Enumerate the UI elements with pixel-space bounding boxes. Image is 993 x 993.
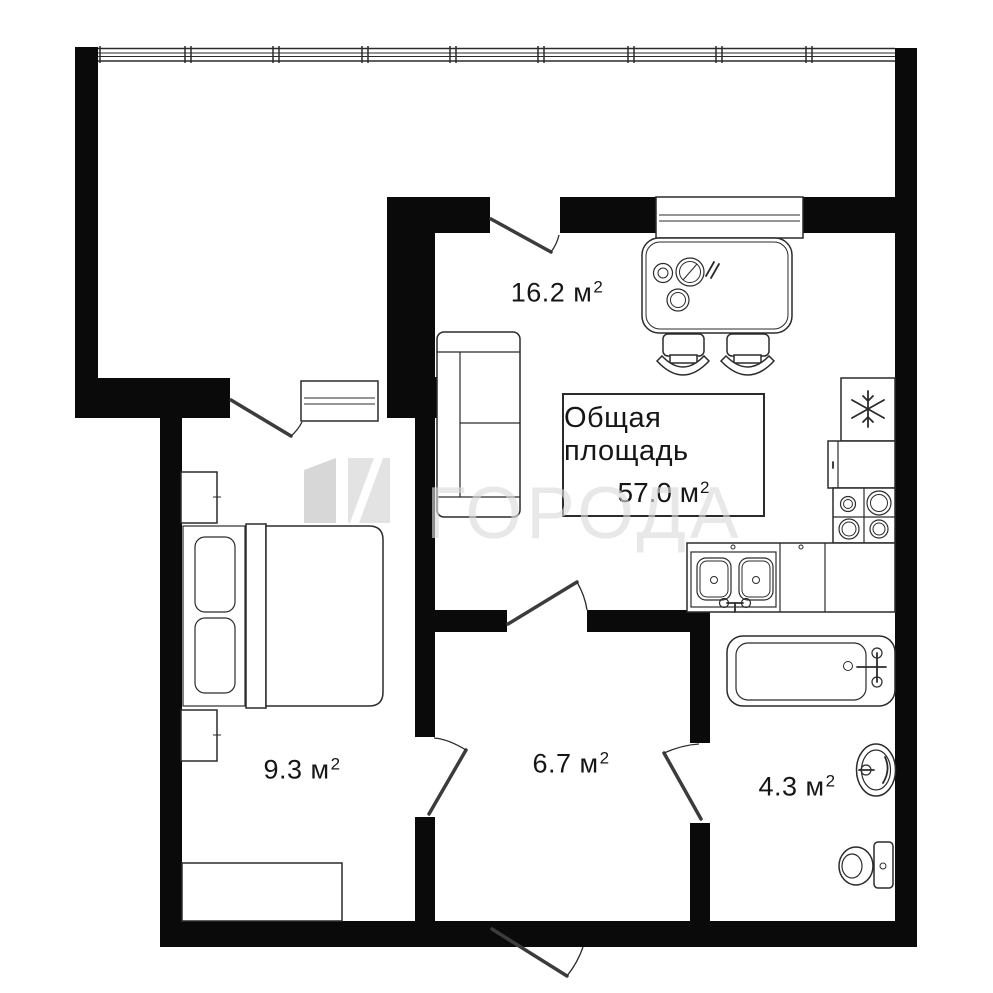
total-area-box: Общая площадь 57.0 м2: [562, 393, 765, 517]
balcony-glazing: [98, 46, 895, 63]
chair-1: [657, 334, 709, 375]
chair-2: [721, 334, 774, 375]
sofa: [437, 332, 520, 517]
fridge: [841, 378, 895, 441]
room-label-living-kitchen: 16.2 м2: [511, 278, 604, 309]
nightstand-top: [181, 472, 221, 523]
bathroom-door: [664, 744, 701, 819]
kitchen-balcony-door: [491, 219, 559, 252]
balcony-door-window: [301, 381, 378, 421]
floor-plan-svg: [0, 0, 993, 993]
washbasin: [857, 744, 896, 796]
pillow: [195, 618, 235, 693]
kitchen-window: [656, 197, 803, 238]
bedroom-door: [429, 738, 466, 814]
pillow: [195, 537, 235, 612]
floor-plan: 16.2 м2 9.3 м2 6.7 м2 4.3 м2 Общая площа…: [0, 0, 993, 993]
room-label-hallway: 6.7 м2: [532, 749, 609, 780]
balcony-door: [231, 400, 302, 436]
kitchen-counter: [687, 543, 895, 612]
dining-table: [642, 238, 792, 333]
total-area-title: Общая площадь: [564, 402, 763, 468]
bathtub: [727, 636, 895, 706]
toilet: [839, 842, 893, 888]
nightstand-bottom: [181, 710, 221, 761]
double-bed: [183, 524, 383, 708]
living-hallway-door: [508, 582, 587, 624]
watermark-logo: [304, 458, 390, 523]
room-label-bedroom: 9.3 м2: [263, 755, 340, 786]
wardrobe: [182, 863, 342, 921]
room-label-bathroom: 4.3 м2: [758, 772, 835, 803]
kitchen-cabinet: [828, 441, 895, 488]
total-area-value: 57.0 м2: [618, 477, 710, 509]
stove: [833, 488, 895, 543]
